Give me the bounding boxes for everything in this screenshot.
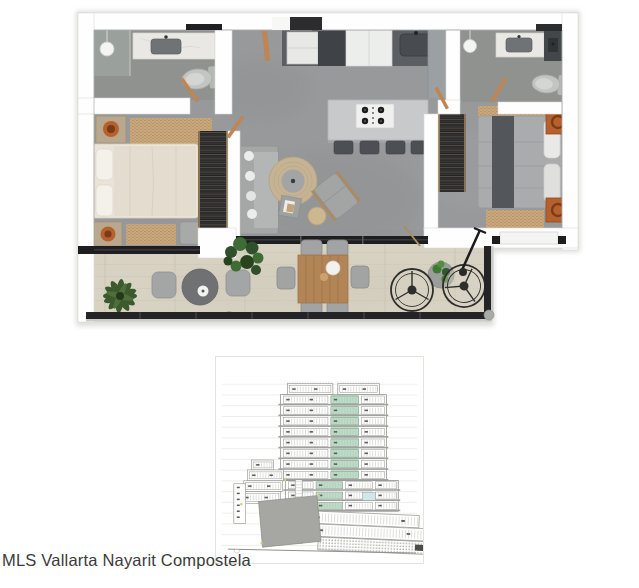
wall-right xyxy=(562,13,578,250)
wall-bath2-bottom xyxy=(498,102,562,114)
shower-head xyxy=(100,42,114,56)
pillow xyxy=(96,185,113,216)
sink-1 xyxy=(151,39,181,54)
entry-doorway xyxy=(272,17,290,30)
listing-image: MLS Vallarta Nayarit Compostela xyxy=(0,0,639,588)
caption: MLS Vallarta Nayarit Compostela xyxy=(2,550,251,570)
kitchen-sink xyxy=(400,34,432,56)
pillow xyxy=(96,149,113,180)
gas-cooktop xyxy=(356,104,394,128)
rug xyxy=(486,210,544,228)
bedroom-1 xyxy=(92,116,228,246)
sink-2 xyxy=(506,38,532,52)
building-section-figure xyxy=(215,356,424,564)
side-table xyxy=(278,195,301,218)
blanket-runner xyxy=(492,116,514,208)
pouf xyxy=(308,207,326,225)
bistro-chair xyxy=(152,272,176,298)
window-sill xyxy=(500,232,558,244)
wall-bed2-corner xyxy=(438,100,460,114)
vent xyxy=(186,24,222,30)
floor-plan-figure xyxy=(0,0,639,340)
entry-mat xyxy=(290,17,322,30)
shower-glass-top xyxy=(536,24,562,31)
closet-2 xyxy=(438,114,466,192)
bistro-chair xyxy=(226,270,250,296)
wall-top xyxy=(78,13,578,30)
wall-bath1-bottom xyxy=(78,98,190,114)
pendant-light xyxy=(464,40,477,53)
tall-cabinet xyxy=(318,30,346,66)
papasan-chair xyxy=(391,269,433,311)
wall-bed2-left xyxy=(424,114,438,230)
wall-bath2-left xyxy=(446,30,460,102)
closet-1 xyxy=(198,131,228,237)
wall-left xyxy=(78,13,94,322)
pillow xyxy=(544,164,560,202)
wall-bath1-right xyxy=(215,30,232,114)
floor-plan-svg xyxy=(0,0,639,340)
rug xyxy=(126,224,176,245)
building-section-svg xyxy=(216,357,423,563)
corner-post xyxy=(484,310,494,320)
